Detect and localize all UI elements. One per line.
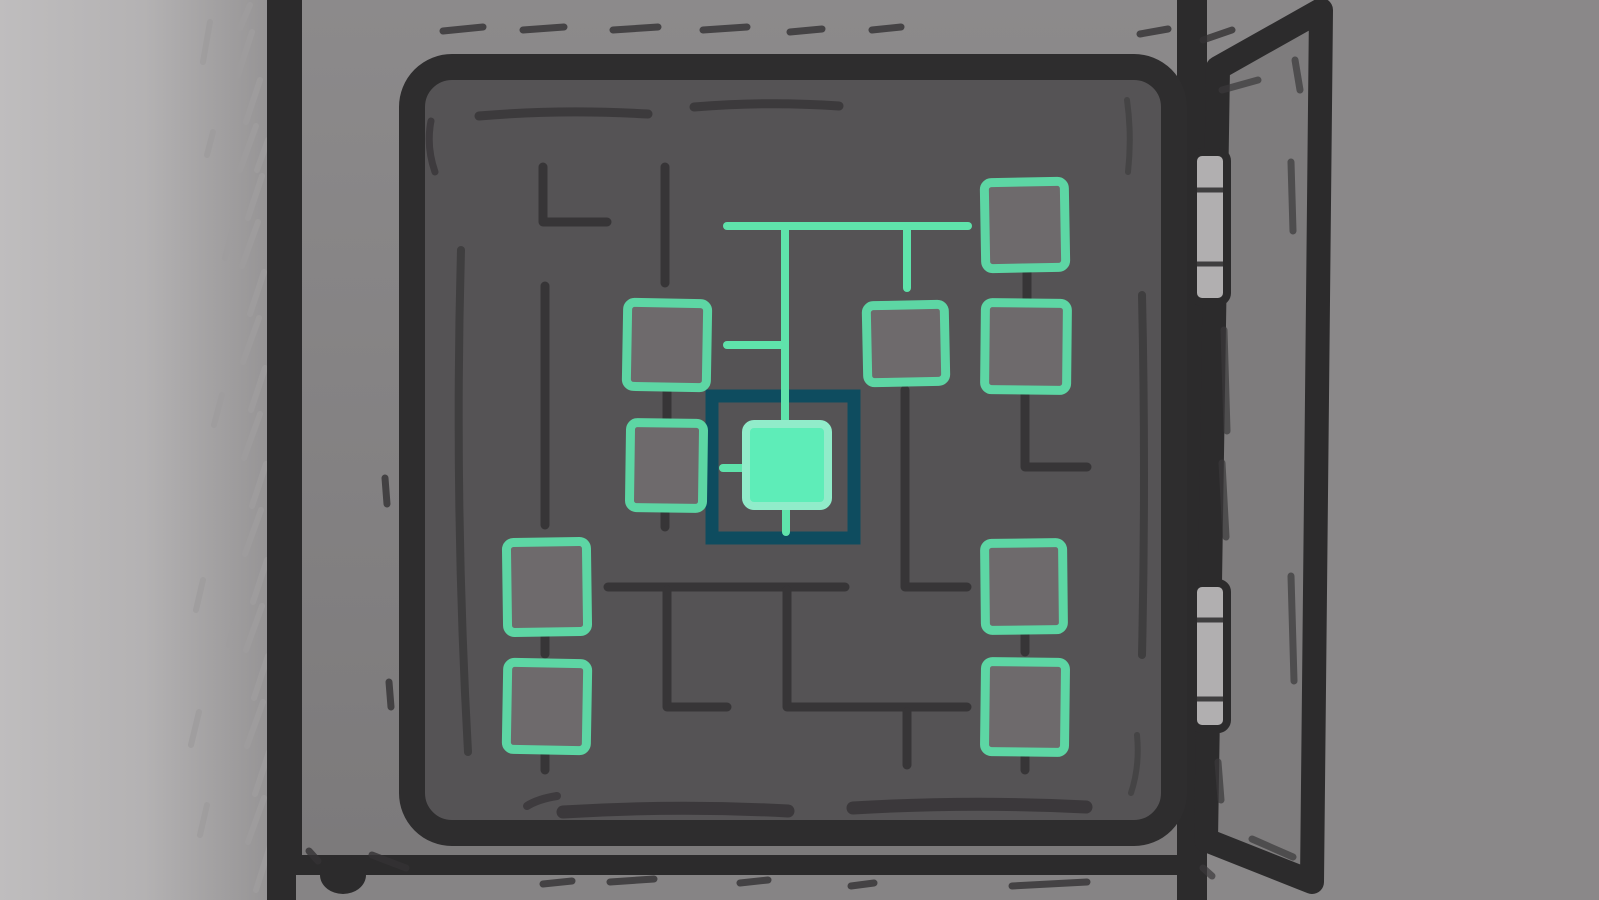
mounting-bolt <box>320 856 366 894</box>
door-sketch-stroke <box>1224 330 1227 431</box>
box-face-sketch-stroke <box>543 881 572 884</box>
box-face-sketch-stroke <box>703 27 747 30</box>
panel-sketch-stroke <box>694 104 839 107</box>
door[interactable] <box>1206 10 1321 882</box>
box-face-sketch-stroke <box>851 883 874 886</box>
hinge-plate <box>1193 583 1227 729</box>
panel-sketch-stroke <box>563 808 788 812</box>
scene-canvas <box>0 0 1599 900</box>
fuse-node-mid-center[interactable] <box>866 304 946 383</box>
door-sketch-stroke <box>1218 762 1221 800</box>
box-face-sketch-stroke <box>610 879 654 882</box>
box-face-sketch-stroke <box>1140 29 1168 34</box>
fuse-node-bottom-right-2[interactable] <box>984 662 1065 753</box>
box-face-sketch-stroke <box>872 27 901 30</box>
box-face-sketch-stroke <box>740 880 768 883</box>
door-sketch-stroke <box>1222 463 1226 537</box>
box-face-sketch-stroke <box>385 478 387 504</box>
box-face-sketch-stroke <box>613 27 658 30</box>
selected-fuse-node[interactable] <box>746 424 828 506</box>
panel-sketch-stroke <box>1127 100 1130 172</box>
box-left-edge <box>267 0 302 900</box>
box-face-sketch-stroke <box>790 29 822 32</box>
fuse-box-scene <box>0 0 1599 900</box>
fuse-node-bottom-left-2[interactable] <box>506 662 588 750</box>
door-sketch-stroke <box>1291 162 1293 231</box>
box-face-sketch-stroke <box>389 682 391 707</box>
door-sketch-stroke <box>1291 576 1294 681</box>
panel-sketch-stroke <box>1142 295 1144 655</box>
box-face-sketch-stroke <box>1012 882 1087 886</box>
box-bottom-edge <box>270 855 1207 875</box>
fuse-box <box>267 0 1232 900</box>
door-sketch-stroke <box>1295 60 1300 90</box>
fuse-node-top-right[interactable] <box>984 181 1065 268</box>
fuse-node-bottom-left-1[interactable] <box>506 541 587 632</box>
fuse-node-mid-left[interactable] <box>626 302 707 387</box>
hinge-plate <box>1193 152 1227 302</box>
hinge-top <box>1193 152 1227 302</box>
box-face-sketch-stroke <box>523 27 564 30</box>
panel-sketch-stroke <box>853 804 1086 808</box>
box-face-sketch-stroke <box>443 27 483 31</box>
hinge-bottom <box>1193 583 1227 729</box>
fuse-node-bottom-right-1[interactable] <box>985 543 1064 631</box>
panel-sketch-stroke <box>479 112 648 116</box>
fuse-node-mid-right[interactable] <box>985 303 1068 391</box>
fuse-node-mid-left-lower[interactable] <box>629 422 703 508</box>
door-group <box>1203 10 1321 882</box>
